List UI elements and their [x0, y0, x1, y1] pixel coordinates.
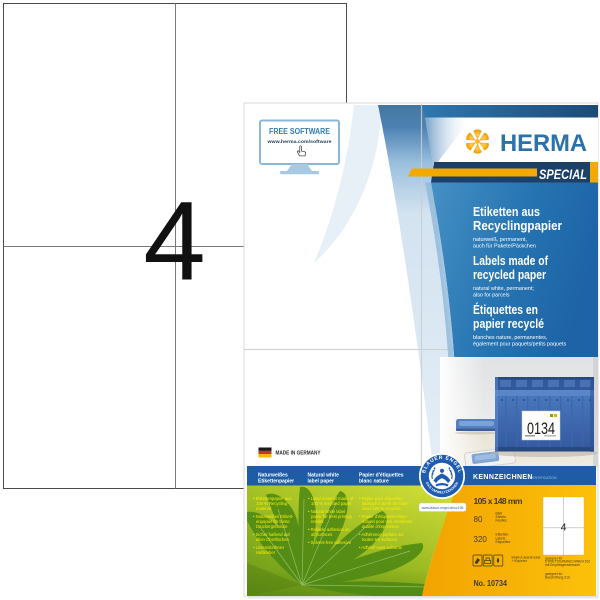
svg-text:material: material	[256, 506, 271, 511]
svg-text:Druckergebnisse: Druckergebnisse	[256, 524, 288, 529]
svg-text:• Solvent-free adhesive: • Solvent-free adhesive	[308, 540, 352, 545]
svg-text:Recyclingpapier: Recyclingpapier	[473, 219, 562, 233]
svg-text:HERMA: HERMA	[500, 130, 587, 157]
svg-text:recycled paper: recycled paper	[473, 268, 546, 282]
svg-text:No. 10734: No. 10734	[474, 578, 508, 588]
svg-text:FREE SOFTWARE: FREE SOFTWARE	[269, 127, 330, 136]
svg-text:mit Empfängeradressen: mit Empfängeradressen	[545, 563, 580, 567]
svg-text:105 x 148 mm: 105 x 148 mm	[474, 496, 523, 506]
svg-text:320: 320	[474, 535, 488, 544]
svg-text:4: 4	[561, 522, 567, 534]
svg-text:SPECIAL: SPECIAL	[539, 167, 587, 182]
svg-text:www.herma.com/software: www.herma.com/software	[266, 139, 331, 145]
svg-text:www.blauer-engel.de/uz195: www.blauer-engel.de/uz195	[422, 506, 464, 510]
svg-text:Etikettenpapier: Etikettenpapier	[258, 479, 294, 485]
svg-text:+ Kopierer: + Kopierer	[512, 559, 528, 563]
svg-text:Étiquettes: Étiquettes	[496, 539, 511, 544]
svg-text:results: results	[311, 519, 323, 524]
svg-text:Étiquettes en: Étiquettes en	[473, 302, 538, 317]
svg-text:KENNZEICHNEN: KENNZEICHNEN	[473, 474, 533, 481]
svg-text:MADE IN GERMANY: MADE IN GERMANY	[276, 451, 321, 457]
svg-text:blanches nature, permanentes,: blanches nature, permanentes,	[473, 335, 548, 341]
svg-text:4: 4	[143, 179, 205, 304]
svg-text:toutes les surfaces: toutes les surfaces	[362, 537, 397, 542]
svg-text:riaux 100 % recyclés: riaux 100 % recyclés	[362, 506, 401, 511]
svg-text:qualité d'impression: qualité d'impression	[362, 524, 400, 529]
svg-text:all surfaces: all surfaces	[311, 532, 332, 537]
svg-text:100 % recycled paper: 100 % recycled paper	[311, 501, 352, 506]
svg-text:80: 80	[474, 515, 483, 524]
svg-text:blanc nature: blanc nature	[359, 479, 389, 485]
svg-text:also for parcels: also for parcels	[473, 293, 510, 299]
svg-text:natural white, permanent;: natural white, permanent;	[473, 286, 534, 292]
svg-text:label paper: label paper	[308, 479, 334, 485]
svg-text:• Adhésif sans solvants: • Adhésif sans solvants	[359, 545, 402, 550]
svg-text:Feuilles: Feuilles	[496, 519, 508, 523]
svg-text:papier recyclé: papier recyclé	[473, 317, 544, 331]
svg-text:Labels made of: Labels made of	[473, 254, 549, 268]
svg-text:Beschriftung 210: Beschriftung 210	[545, 575, 570, 579]
svg-text:également pour paquets/petits: également pour paquets/petits paquets	[473, 342, 567, 348]
svg-text:Haftkleber: Haftkleber	[256, 550, 276, 555]
svg-text:allen Oberflächen: allen Oberflächen	[256, 537, 289, 542]
svg-text:IDENTIFICATION: IDENTIFICATION	[529, 476, 557, 480]
svg-text:auch für Pakete/Päckchen: auch für Pakete/Päckchen	[473, 244, 536, 250]
svg-text:Etiketten aus: Etiketten aus	[473, 205, 540, 219]
svg-text:naturweiß, permanent,: naturweiß, permanent,	[473, 237, 527, 243]
